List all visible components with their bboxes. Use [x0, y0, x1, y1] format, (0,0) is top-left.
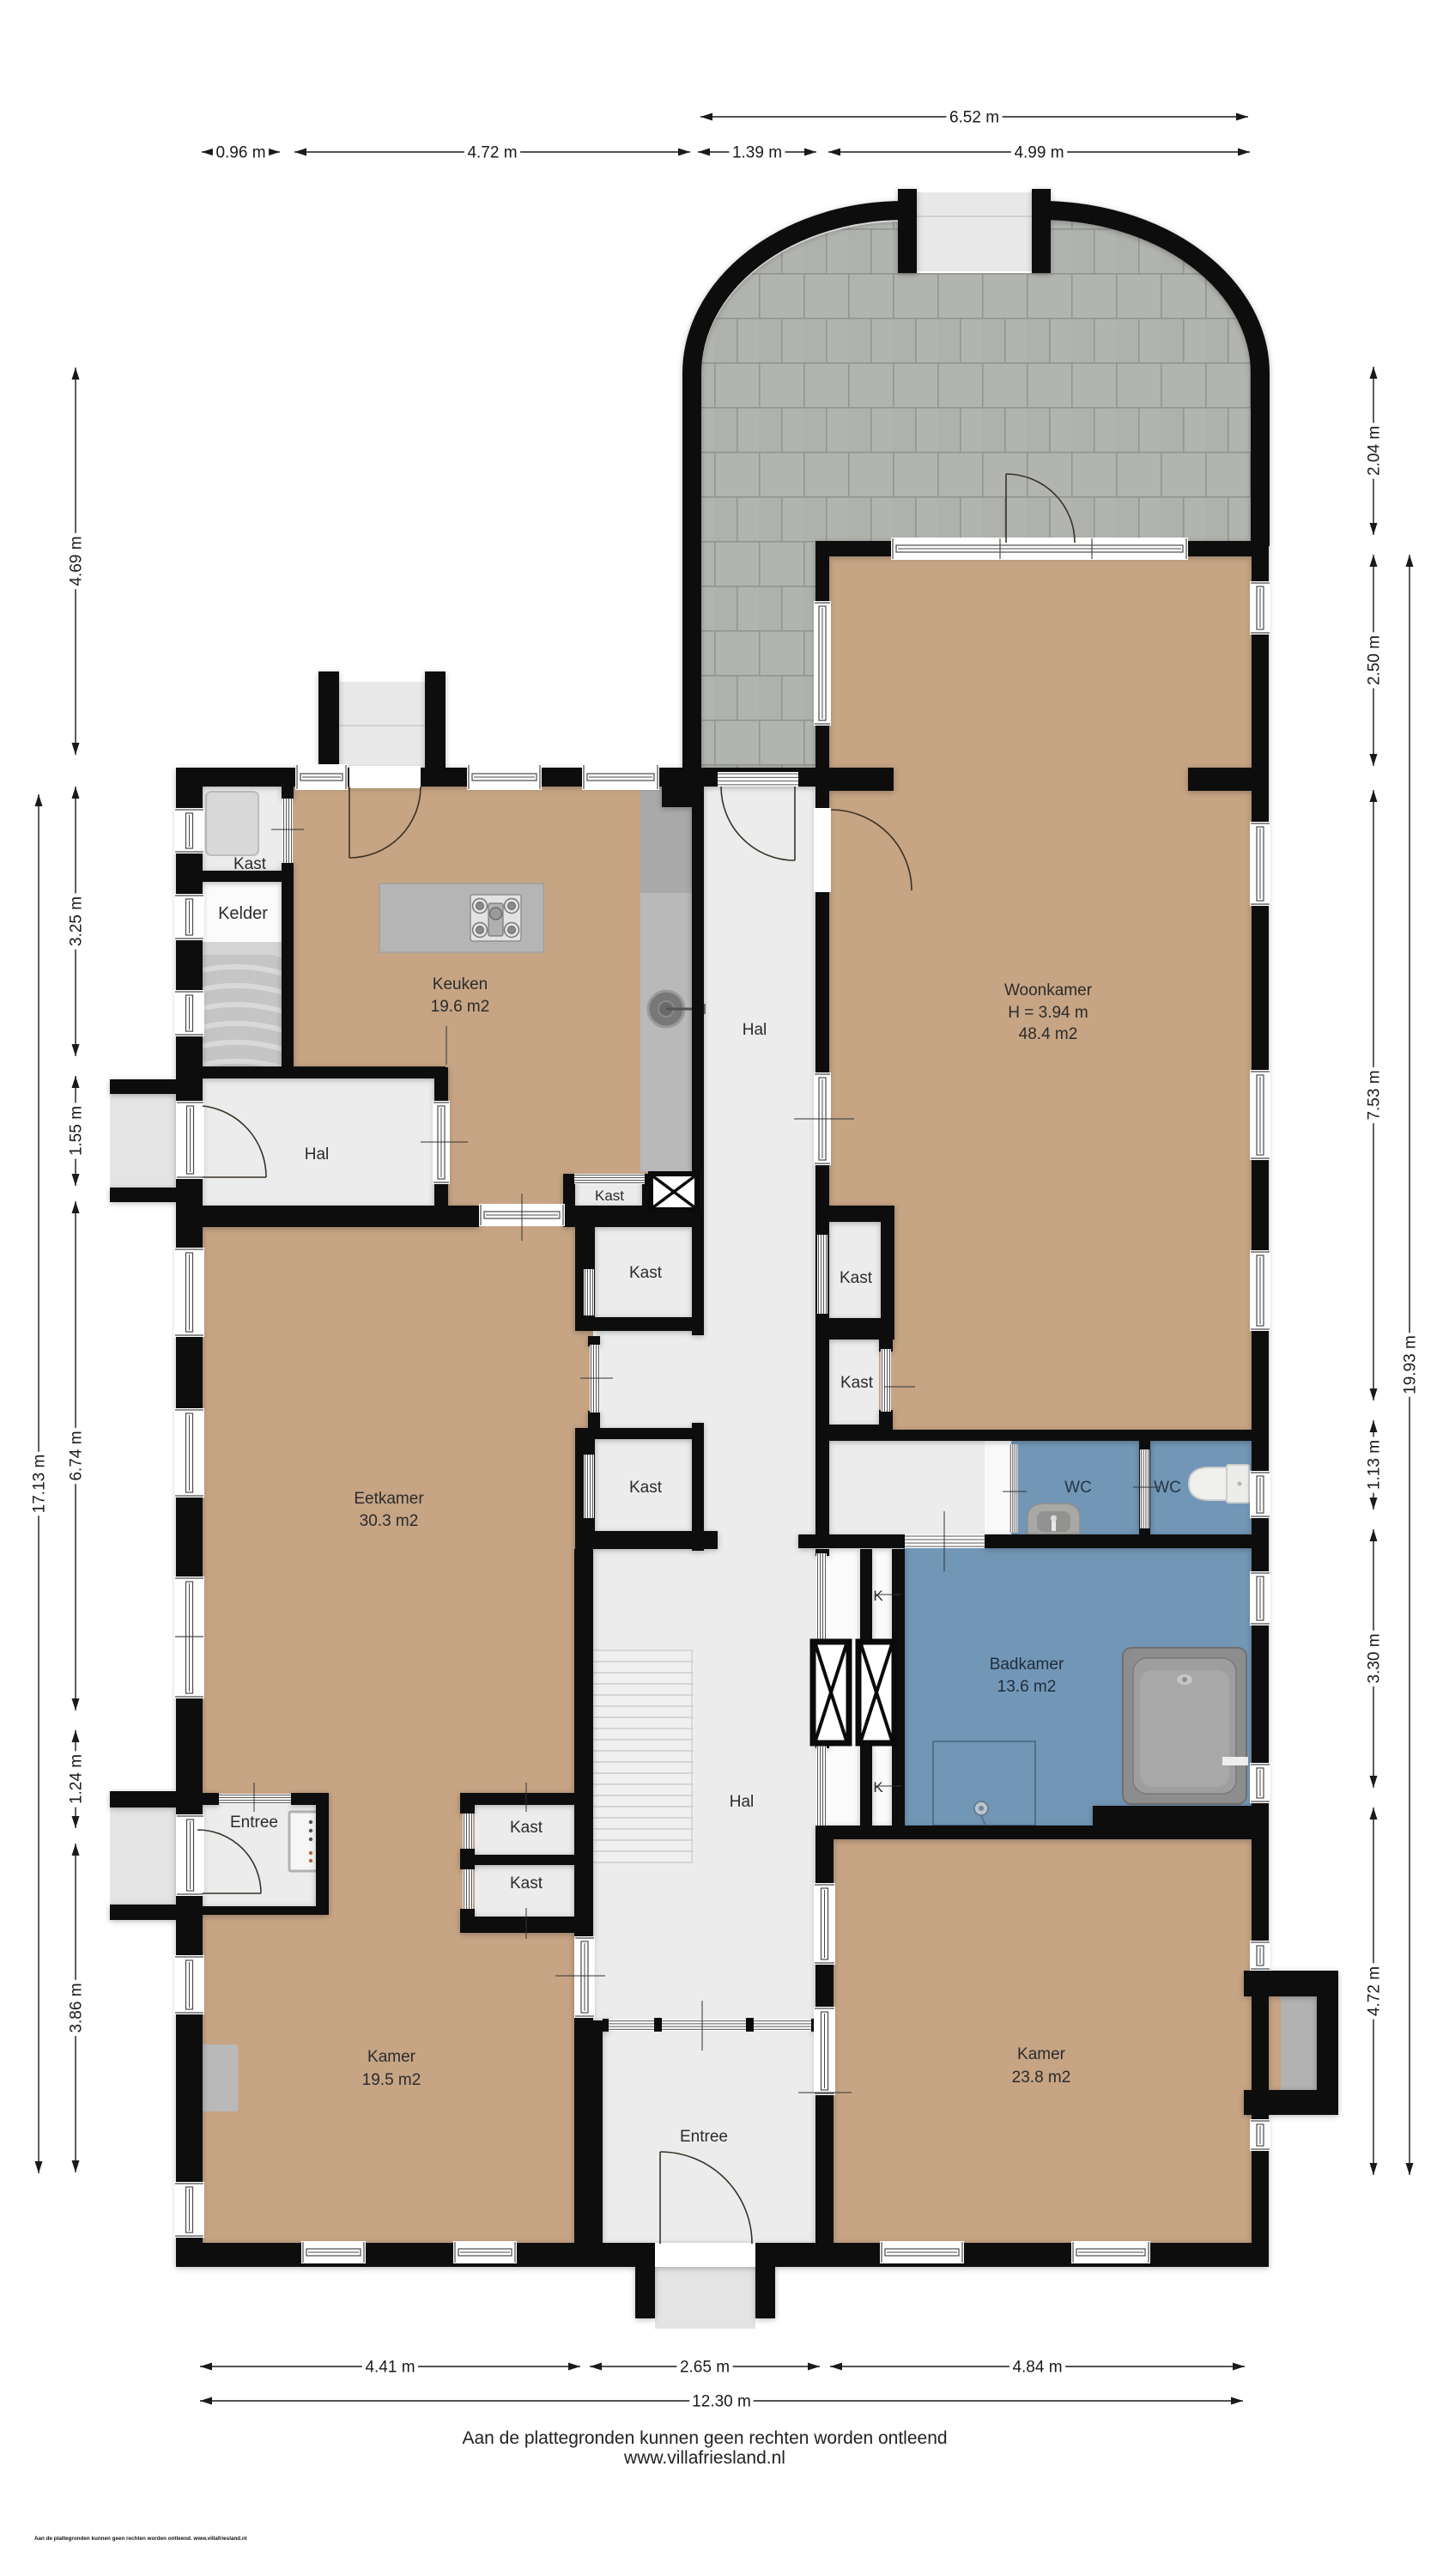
svg-text:30.3 m2: 30.3 m2 [360, 1512, 419, 1530]
svg-text:19.93 m: 19.93 m [1402, 1335, 1420, 1394]
svg-text:13.6 m2: 13.6 m2 [997, 1678, 1057, 1696]
svg-text:4.72 m: 4.72 m [1366, 1966, 1384, 2016]
svg-text:4.72 m: 4.72 m [467, 144, 517, 162]
svg-text:Eetkamer: Eetkamer [354, 1490, 424, 1508]
svg-text:1.55 m: 1.55 m [68, 1106, 86, 1156]
svg-text:Kast: Kast [629, 1264, 663, 1282]
svg-text:Kamer: Kamer [367, 2048, 416, 2066]
svg-text:Hal: Hal [730, 1793, 755, 1811]
svg-text:Kast: Kast [629, 1479, 663, 1497]
svg-text:Aan de plattegronden kunnen ge: Aan de plattegronden kunnen geen rechten… [462, 2428, 947, 2448]
svg-text:4.99 m: 4.99 m [1014, 144, 1064, 162]
svg-text:Kamer: Kamer [1017, 2045, 1066, 2063]
svg-text:Entree: Entree [680, 2128, 728, 2146]
svg-text:Kast: Kast [840, 1374, 874, 1392]
svg-text:Keuken: Keuken [433, 975, 488, 993]
svg-text:Kast: Kast [840, 1269, 873, 1287]
svg-text:17.13 m: 17.13 m [31, 1455, 49, 1514]
svg-text:www.villafriesland.nl: www.villafriesland.nl [623, 2448, 785, 2468]
svg-text:Aan de plattegronden kunnen ge: Aan de plattegronden kunnen geen rechten… [34, 2536, 247, 2542]
svg-text:Hal: Hal [743, 1021, 767, 1039]
svg-text:WC: WC [1064, 1479, 1092, 1497]
svg-text:1.13 m: 1.13 m [1366, 1440, 1384, 1490]
svg-text:WC: WC [1154, 1479, 1181, 1497]
svg-text:H = 3.94 m: H = 3.94 m [1008, 1004, 1088, 1022]
svg-text:Entree: Entree [230, 1814, 278, 1832]
svg-text:Hal: Hal [305, 1145, 330, 1163]
svg-text:4.69 m: 4.69 m [68, 536, 86, 586]
svg-text:3.25 m: 3.25 m [68, 896, 86, 946]
svg-text:1.24 m: 1.24 m [68, 1754, 86, 1804]
svg-text:4.41 m: 4.41 m [365, 2359, 415, 2377]
svg-text:1.39 m: 1.39 m [732, 144, 782, 162]
svg-text:Kast: Kast [233, 855, 267, 873]
svg-text:6.52 m: 6.52 m [949, 109, 999, 127]
svg-text:12.30 m: 12.30 m [692, 2393, 751, 2411]
svg-text:7.53 m: 7.53 m [1366, 1070, 1384, 1120]
svg-text:Woonkamer: Woonkamer [1004, 981, 1093, 999]
svg-text:Badkamer: Badkamer [990, 1656, 1064, 1674]
svg-text:48.4 m2: 48.4 m2 [1019, 1025, 1078, 1043]
svg-text:K: K [873, 1588, 883, 1604]
svg-text:2.65 m: 2.65 m [680, 2359, 730, 2377]
svg-text:3.86 m: 3.86 m [68, 1983, 86, 2032]
svg-text:0.96 m: 0.96 m [215, 144, 265, 162]
svg-text:K: K [873, 1779, 883, 1795]
svg-text:Kast: Kast [595, 1188, 624, 1204]
svg-text:3.30 m: 3.30 m [1366, 1633, 1384, 1683]
svg-text:4.84 m: 4.84 m [1012, 2359, 1062, 2377]
svg-text:19.6 m2: 19.6 m2 [431, 998, 490, 1016]
svg-text:Kelder: Kelder [218, 904, 268, 923]
svg-text:23.8 m2: 23.8 m2 [1012, 2069, 1071, 2087]
svg-text:19.5 m2: 19.5 m2 [362, 2071, 421, 2089]
svg-text:6.74 m: 6.74 m [68, 1431, 86, 1480]
svg-text:Kast: Kast [510, 1874, 543, 1893]
svg-text:2.04 m: 2.04 m [1366, 426, 1384, 476]
svg-text:Kast: Kast [510, 1819, 543, 1837]
svg-text:2.50 m: 2.50 m [1366, 635, 1384, 685]
